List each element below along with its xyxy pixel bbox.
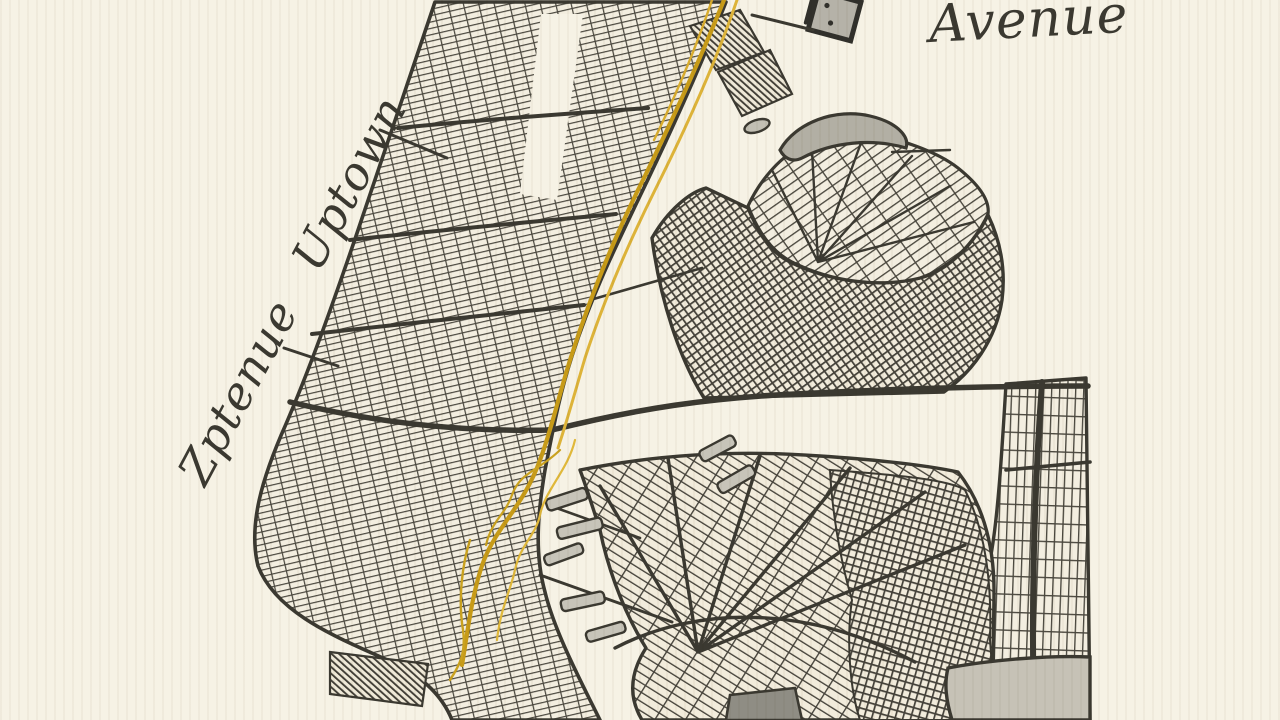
city-map-illustration: Avenue Zptenue Uptown xyxy=(0,0,1280,720)
map-canvas: Avenue Zptenue Uptown xyxy=(0,0,1280,720)
comb-piers-north xyxy=(690,10,792,136)
small-island xyxy=(743,116,771,135)
avenue-label: Avenue xyxy=(924,0,1130,55)
fan-grid xyxy=(748,114,988,283)
south-grid xyxy=(580,453,1000,720)
building-marker-icon xyxy=(804,0,861,41)
gray-basin xyxy=(946,657,1090,720)
